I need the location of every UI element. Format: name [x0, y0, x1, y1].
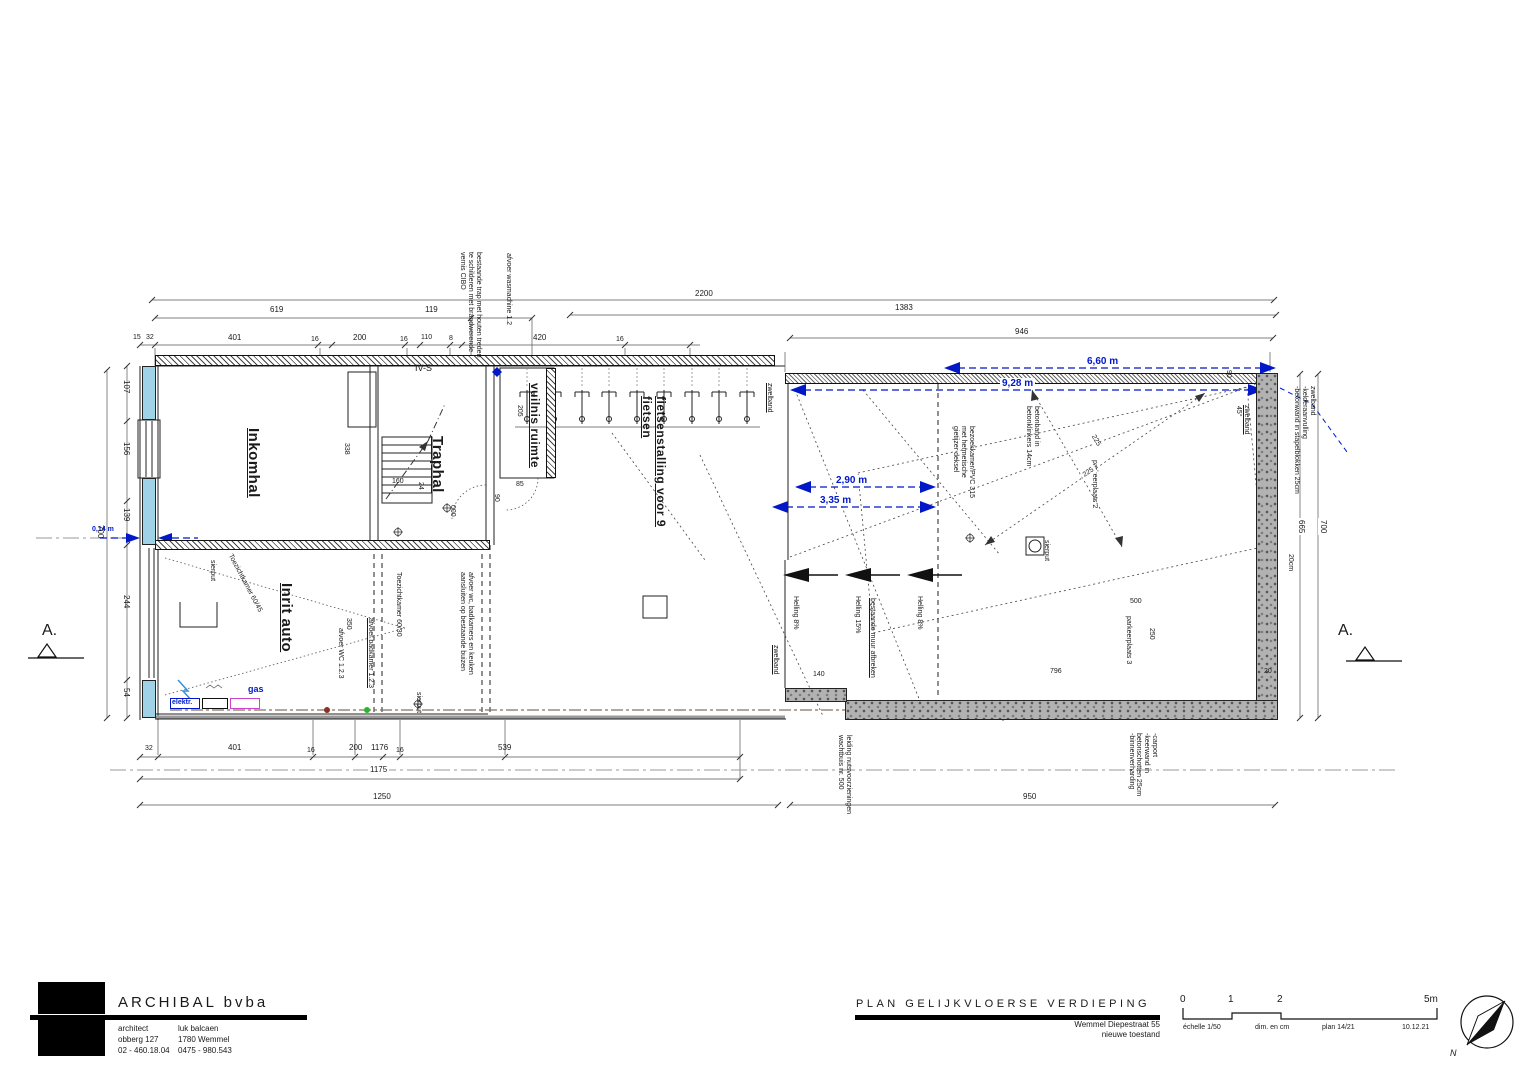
firm-name: ARCHIBAL bvba: [118, 995, 268, 1012]
dim-blue-660: 6,60 m: [1085, 356, 1120, 367]
note-sierput-2: sierput: [414, 692, 422, 713]
dim-top-1383: 1383: [895, 304, 913, 313]
dim-top-619: 619: [270, 306, 283, 315]
scale-echelle: échelle 1/50: [1183, 1024, 1221, 1032]
dim-right-700: 700: [1318, 518, 1327, 535]
scale-date: 10.12.21: [1402, 1024, 1429, 1032]
section-cut-markers: [28, 644, 1402, 661]
note-demolish-wall: bestaande muur afbreken: [868, 598, 876, 678]
dim-left-244: 244: [121, 595, 130, 608]
meter-box-gas: [230, 698, 260, 709]
note-wc-drain: afvoer WC 1.2.3: [336, 628, 344, 679]
note-utilities-duct: leiding nutsvoorzieningen wachtbuis nr. …: [836, 735, 852, 814]
dim-blue-290: 2,90 m: [834, 475, 869, 486]
note-ivs: IV-S: [415, 363, 432, 373]
section-label-right: A.: [1338, 622, 1353, 640]
dim-inner-250: 250: [1147, 626, 1155, 642]
note-sierput-3: sierput: [1042, 540, 1050, 561]
dim-top-16c: 16: [616, 336, 624, 344]
meter-box-water: [202, 698, 228, 709]
dim-top-110: 110: [421, 334, 432, 342]
dim-bot-1175: 1175: [368, 766, 389, 775]
dim-inner-90b: 90: [1224, 370, 1232, 378]
note-slope-15: Helling 15%: [853, 596, 861, 633]
blue-dimension-lines: [100, 362, 1347, 543]
dim-inner-205: 205: [515, 405, 523, 417]
room-label-inrit-auto: Inrit auto: [278, 583, 295, 652]
dim-left-139: 139: [121, 508, 130, 521]
room-label-inkomhal: Inkomhal: [245, 428, 262, 498]
project-address: Wemmel Diepestraat 55: [960, 1021, 1160, 1030]
project-state: nieuwe toestand: [960, 1031, 1160, 1040]
sewer-node-wc: [324, 707, 330, 713]
dim-right-665: 665: [1296, 518, 1305, 535]
dim-top-32: 32: [146, 334, 154, 342]
dim-right-wall-20cm: 20cm: [1286, 552, 1294, 573]
dim-bot-16b: 16: [396, 747, 404, 755]
note-washing-machine-drain: afvoer wasmachine 1.2: [504, 253, 512, 325]
facade-segment-3: [142, 680, 156, 718]
note-parking-3: parkeerplaats 3: [1124, 616, 1132, 664]
architect-city: 1780 Wemmel: [178, 1036, 229, 1045]
meter-label-gas: gas: [248, 684, 264, 694]
dim-inner-45: 45°: [1234, 406, 1242, 417]
north-label: N: [1450, 1048, 1457, 1058]
wall-step-concrete: [785, 688, 847, 702]
dim-bot-950: 950: [1023, 793, 1036, 802]
dim-bot-401: 401: [228, 744, 241, 753]
facade-segment-2: [142, 478, 156, 545]
dim-bot-1176: 1176: [371, 744, 388, 753]
scale-tick-1: 1: [1228, 994, 1234, 1005]
scale-bar: [1183, 1008, 1437, 1019]
facade-segment-1: [142, 366, 156, 420]
dim-bot-16a: 16: [307, 747, 315, 755]
dim-inner-338: 338: [342, 443, 350, 455]
scale-tick-5m: 5m: [1424, 994, 1438, 1005]
note-kitchen-drain: afvoer wc, badkamers en keuken aansluite…: [458, 572, 474, 675]
note-concrete-edge: betonband in betonklinkers 14cm: [1024, 406, 1040, 466]
dim-left-107: 107: [121, 380, 130, 393]
dim-inner-350: 350: [344, 618, 352, 630]
dim-inner-140: 140: [813, 671, 825, 679]
dim-top-401: 401: [228, 334, 241, 343]
firm-street: obberg 127: [118, 1036, 158, 1045]
dim-right-20: 20: [1264, 668, 1272, 676]
firm-logo-lower: [38, 1020, 105, 1056]
floorplan-sheet: elektr. gas Inkomhal Traphal Inrit auto …: [0, 0, 1526, 1080]
room-label-fietsenstalling: fietsenstalling voor 9 fietsen: [640, 396, 668, 527]
level-marker-000: 000: [448, 505, 456, 517]
dim-bot-1250: 1250: [373, 793, 391, 802]
architect-mobile: 0475 - 980.543: [178, 1047, 232, 1056]
dim-bot-32: 32: [145, 745, 153, 753]
firm-logo: [38, 982, 105, 1014]
sewer-node-bath: [364, 707, 370, 713]
dim-left-54: 54: [121, 688, 130, 697]
dim-inner-796: 796: [1050, 668, 1062, 676]
note-zwelband-1: zwelband: [765, 383, 773, 413]
dim-bot-539: 539: [498, 744, 511, 753]
dim-inner-85: 85: [516, 481, 524, 489]
note-inspection-pvc315: bezoekkamer/PVC 315 met hermetische giet…: [952, 426, 975, 498]
dim-inner-160: 160: [392, 478, 404, 486]
dim-top-946: 946: [1015, 328, 1028, 337]
note-stair-varnish: bestaande trap met houten treden te schi…: [459, 252, 482, 357]
scale-tick-0: 0: [1180, 994, 1186, 1005]
note-bathroom-drain: afvoer badkamer 1.2.3: [366, 618, 374, 688]
scale-tick-2: 2: [1277, 994, 1283, 1005]
scale-plan-number: plan 14/21: [1322, 1024, 1355, 1032]
note-slope-8a: Helling 8%: [791, 596, 799, 629]
note-inspection-chamber-6030: Toezichtkamer 60/30: [394, 572, 402, 637]
ramp-direction-arrows: [783, 568, 962, 582]
dim-blue-335: 3,35 m: [818, 495, 853, 506]
dim-bot-200: 200: [349, 744, 362, 753]
note-bottom-retaining-wall: -carport -keerwand in betonschotten 25cm…: [1127, 733, 1158, 796]
water-symbol-icon: [206, 685, 222, 688]
dim-top-16a: 16: [311, 336, 319, 344]
wall-vuilnis: [546, 368, 556, 478]
dim-inner-24: 24: [416, 482, 424, 490]
wall-bottom-concrete: [845, 700, 1278, 720]
note-zwelband-3: zwelband: [771, 645, 779, 675]
dim-top-8: 8: [449, 335, 453, 343]
firm-phone: 02 - 460.18.04: [118, 1047, 170, 1056]
dim-left-156: 156: [121, 442, 130, 455]
firm-role: architect: [118, 1025, 148, 1034]
meter-label-electricity: elektr.: [172, 699, 192, 707]
note-zwelband-2: zwelband: [1242, 405, 1250, 435]
note-slope-8b: Helling 8%: [915, 596, 923, 629]
scale-units: dim. en cm: [1255, 1024, 1289, 1032]
dim-top-16b: 16: [400, 336, 408, 344]
dim-top-15: 15: [133, 334, 141, 342]
north-compass-icon: [1461, 996, 1513, 1048]
room-label-traphal: Traphal: [429, 436, 446, 493]
note-sierput-1: sierput: [208, 560, 216, 581]
dim-top-total: 2200: [695, 290, 713, 299]
note-right-retaining-wall: zwelband -kelderaanvulling -betonwand in…: [1293, 386, 1316, 494]
dim-top-420: 420: [533, 334, 546, 343]
section-label-left: A.: [42, 622, 57, 640]
dim-inner-90: 90: [492, 494, 500, 502]
titleblock-rule-left: [30, 1015, 307, 1020]
dim-top-200: 200: [353, 334, 366, 343]
dim-inner-500: 500: [1128, 598, 1144, 606]
dim-left-total: 700: [95, 525, 104, 538]
dim-blue-928: 9,28 m: [1000, 378, 1035, 389]
dim-top-119: 119: [425, 306, 438, 315]
wall-middle: [155, 540, 490, 550]
sheet-title: PLAN GELIJKVLOERSE VERDIEPING: [856, 998, 1150, 1010]
room-label-vuilnis: vuilnis ruimte: [528, 383, 542, 468]
architect-name: luk balcaen: [178, 1025, 218, 1034]
